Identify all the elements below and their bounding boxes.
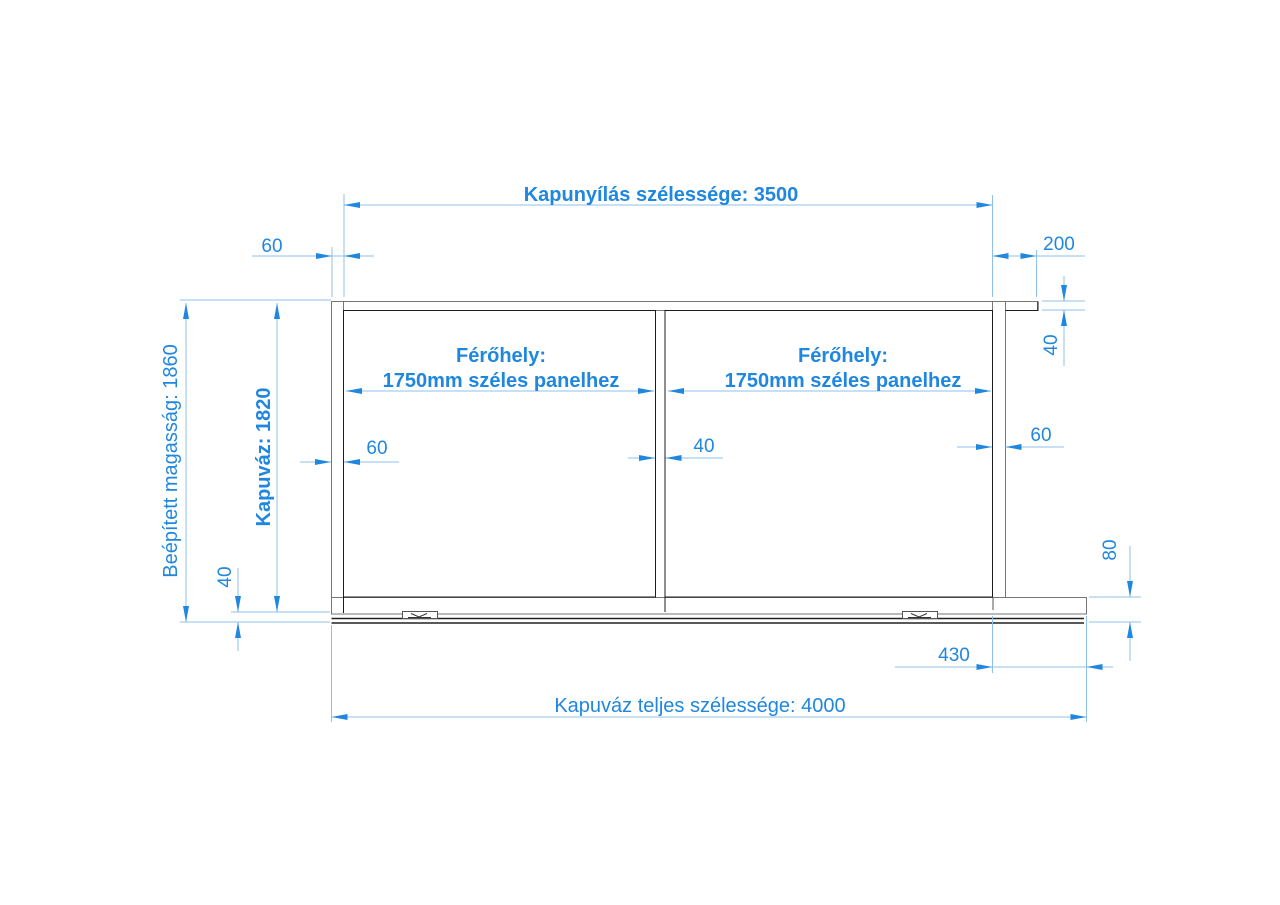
- arrowhead: [1021, 253, 1037, 259]
- panel-left-label-line2: 1750mm széles panelhez: [383, 370, 620, 392]
- arrowhead: [977, 664, 993, 670]
- arrowhead: [346, 388, 362, 394]
- arrowhead: [639, 455, 655, 461]
- installed-height-label: Beépített magasság: 1860: [160, 344, 182, 578]
- roller-left: [403, 612, 438, 619]
- arrowhead: [344, 459, 360, 465]
- post-width-mid-left-label: 60: [366, 438, 387, 459]
- panel-left-label-line1: Férőhely:: [456, 345, 546, 367]
- post-width-mid-right-label: 60: [1030, 425, 1051, 446]
- rail-thickness-right-label: 40: [1041, 334, 1062, 355]
- arrowhead: [235, 622, 241, 638]
- arrowhead: [976, 444, 992, 450]
- arrowhead: [1061, 310, 1067, 326]
- arrowhead: [1061, 285, 1067, 301]
- arrowhead: [316, 253, 332, 259]
- bottom-clearance-left-label: 40: [215, 566, 236, 587]
- arrowhead: [235, 596, 241, 612]
- panel-right-label-line2: 1750mm széles panelhez: [725, 370, 962, 392]
- arrowhead: [344, 253, 360, 259]
- arrowhead: [975, 388, 991, 394]
- frame-structure: [332, 302, 1087, 624]
- frame-height-label: Kapuváz: 1820: [253, 388, 275, 527]
- post-width-top-left-label: 60: [261, 236, 282, 257]
- arrowhead: [977, 202, 993, 208]
- panel-right-label-line1: Férőhely:: [798, 345, 888, 367]
- bottom-rail: [332, 598, 1087, 615]
- drawing-canvas: Kapunyílás szélessége: 3500 60 200 40 Be…: [0, 0, 1280, 905]
- rail-overhang-right-label: 200: [1043, 234, 1075, 255]
- frame-total-width-label: Kapuváz teljes szélessége: 4000: [554, 695, 845, 717]
- top-rail: [332, 302, 1038, 311]
- arrowhead: [344, 202, 360, 208]
- arrowhead: [183, 606, 189, 622]
- arrowhead: [274, 303, 280, 319]
- bottom-overhang-right-label: 430: [938, 645, 970, 666]
- arrowhead: [993, 253, 1009, 259]
- arrowhead: [332, 714, 348, 720]
- left-post: [332, 302, 344, 613]
- right-post: [993, 302, 1006, 613]
- middle-post-width-label: 40: [693, 436, 714, 457]
- arrowhead: [638, 388, 654, 394]
- arrowhead: [1127, 581, 1133, 597]
- arrowhead: [666, 455, 682, 461]
- arrowhead: [1127, 622, 1133, 638]
- bottom-rail-height-right-label: 80: [1100, 539, 1121, 560]
- arrowhead: [274, 596, 280, 612]
- arrowhead: [315, 459, 331, 465]
- arrowhead: [1071, 714, 1087, 720]
- middle-post: [656, 311, 666, 612]
- gate-opening-width-label: Kapunyílás szélessége: 3500: [524, 184, 799, 206]
- arrowhead: [1087, 664, 1103, 670]
- gate-frame-diagram: Kapunyílás szélessége: 3500 60 200 40 Be…: [0, 0, 1280, 905]
- dimension-labels: Kapunyílás szélessége: 3500 60 200 40 Be…: [160, 184, 1121, 717]
- arrowhead: [1006, 444, 1022, 450]
- roller-right: [903, 612, 938, 619]
- arrowhead: [183, 303, 189, 319]
- arrowhead: [668, 388, 684, 394]
